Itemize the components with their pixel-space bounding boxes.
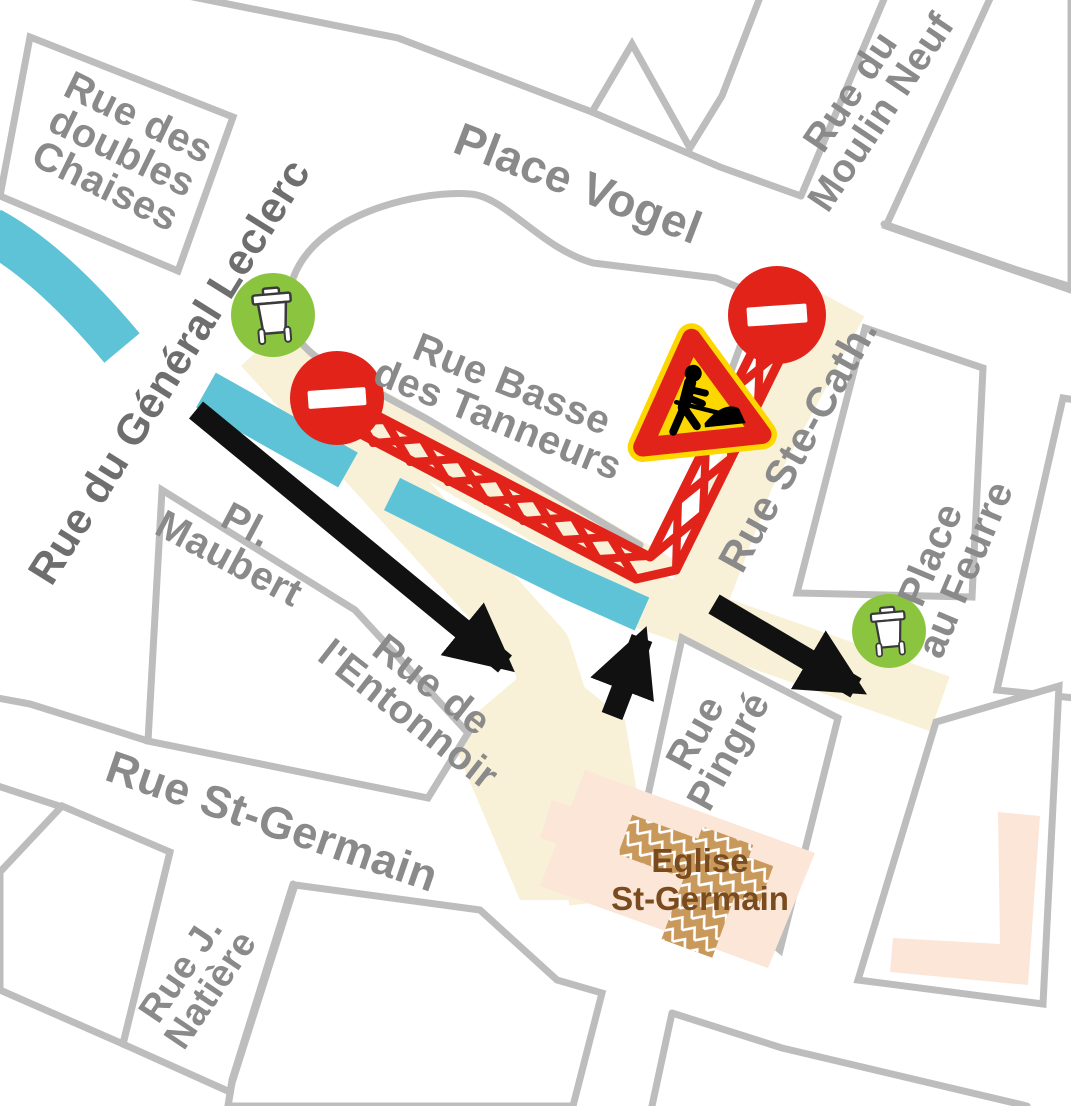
street-closure-map: Rue des doubles Chaises Place Vogel Rue … xyxy=(0,0,1071,1106)
no-entry-sign xyxy=(290,351,384,445)
label-eglise-st-germain: Eglise St-Germain xyxy=(611,842,789,918)
no-entry-sign xyxy=(728,266,826,364)
